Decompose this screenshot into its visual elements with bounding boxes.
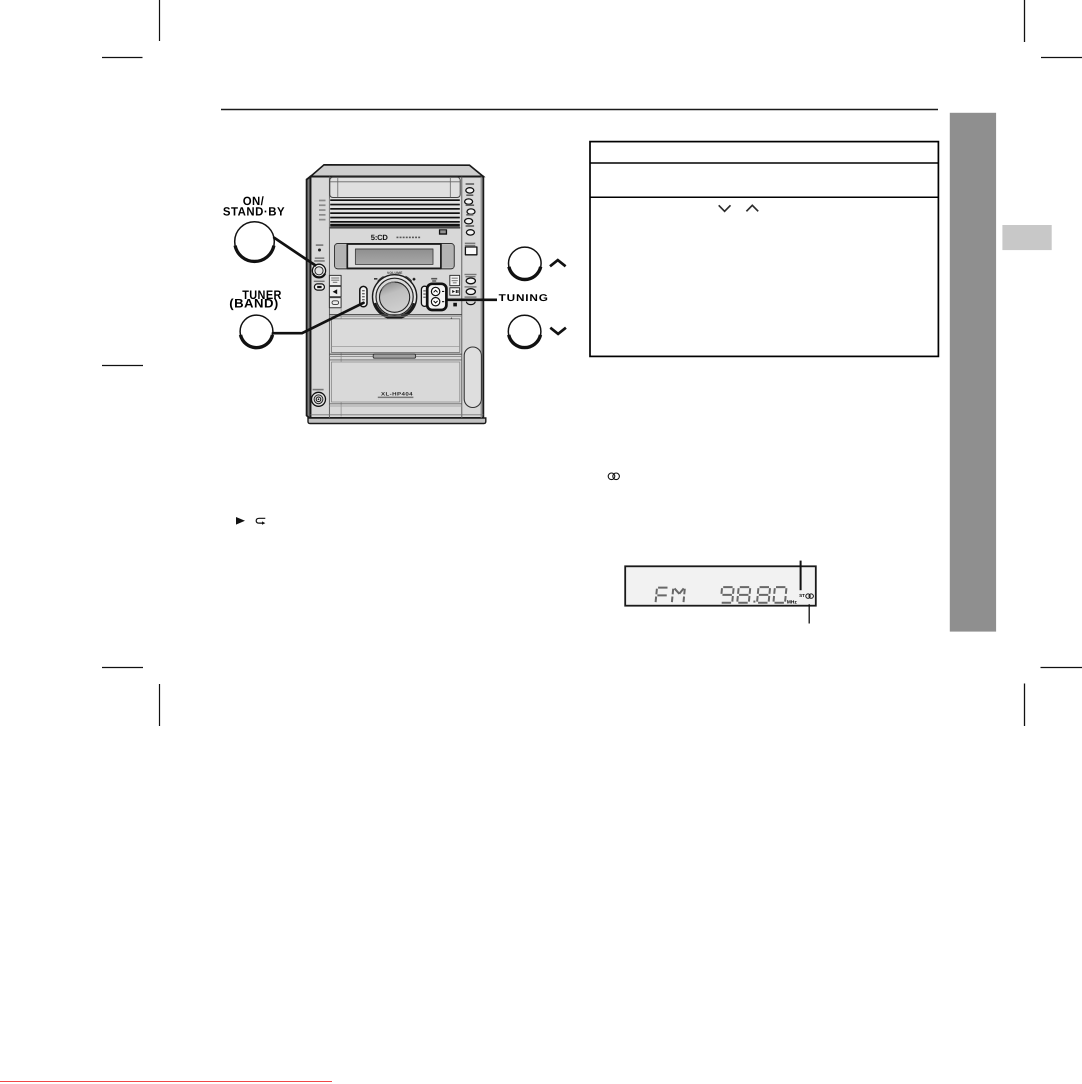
svg-text:TUNING: TUNING — [499, 293, 549, 304]
svg-text:(BAND): (BAND) — [229, 297, 279, 311]
svg-text:5:CD: 5:CD — [371, 233, 389, 242]
svg-text:MHz: MHz — [787, 600, 797, 606]
svg-text:ST: ST — [799, 593, 805, 598]
svg-text:STAND·BY: STAND·BY — [223, 204, 285, 218]
